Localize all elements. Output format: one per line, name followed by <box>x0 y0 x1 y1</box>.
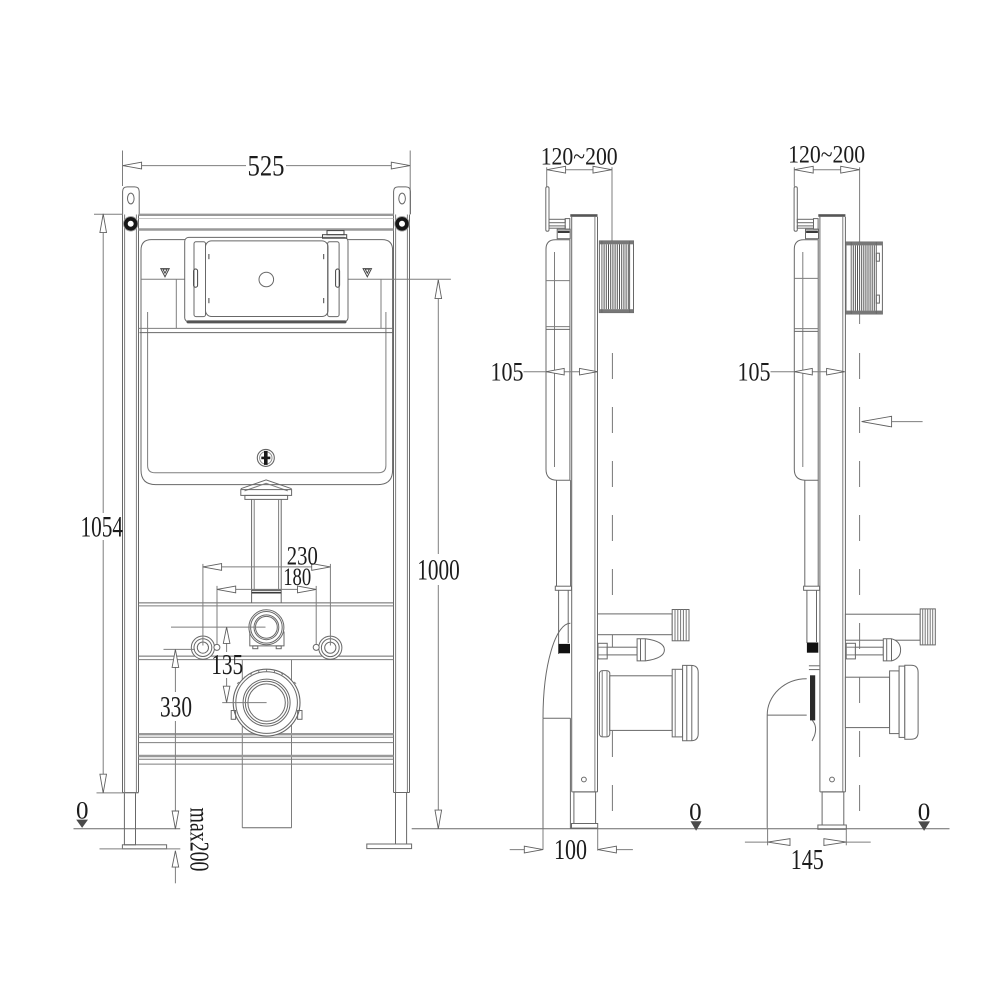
svg-text:1000: 1000 <box>417 554 460 587</box>
svg-text:330: 330 <box>160 691 192 724</box>
svg-text:135: 135 <box>211 650 243 681</box>
svg-text:145: 145 <box>791 844 824 876</box>
svg-text:120~200: 120~200 <box>541 144 618 171</box>
svg-text:105: 105 <box>738 357 771 386</box>
svg-text:1054: 1054 <box>80 511 123 544</box>
svg-text:100: 100 <box>554 835 587 866</box>
svg-text:105: 105 <box>491 357 524 386</box>
svg-text:180: 180 <box>283 564 311 591</box>
svg-text:max200: max200 <box>185 808 215 872</box>
svg-text:525: 525 <box>248 150 285 183</box>
svg-text:120~200: 120~200 <box>788 142 865 169</box>
